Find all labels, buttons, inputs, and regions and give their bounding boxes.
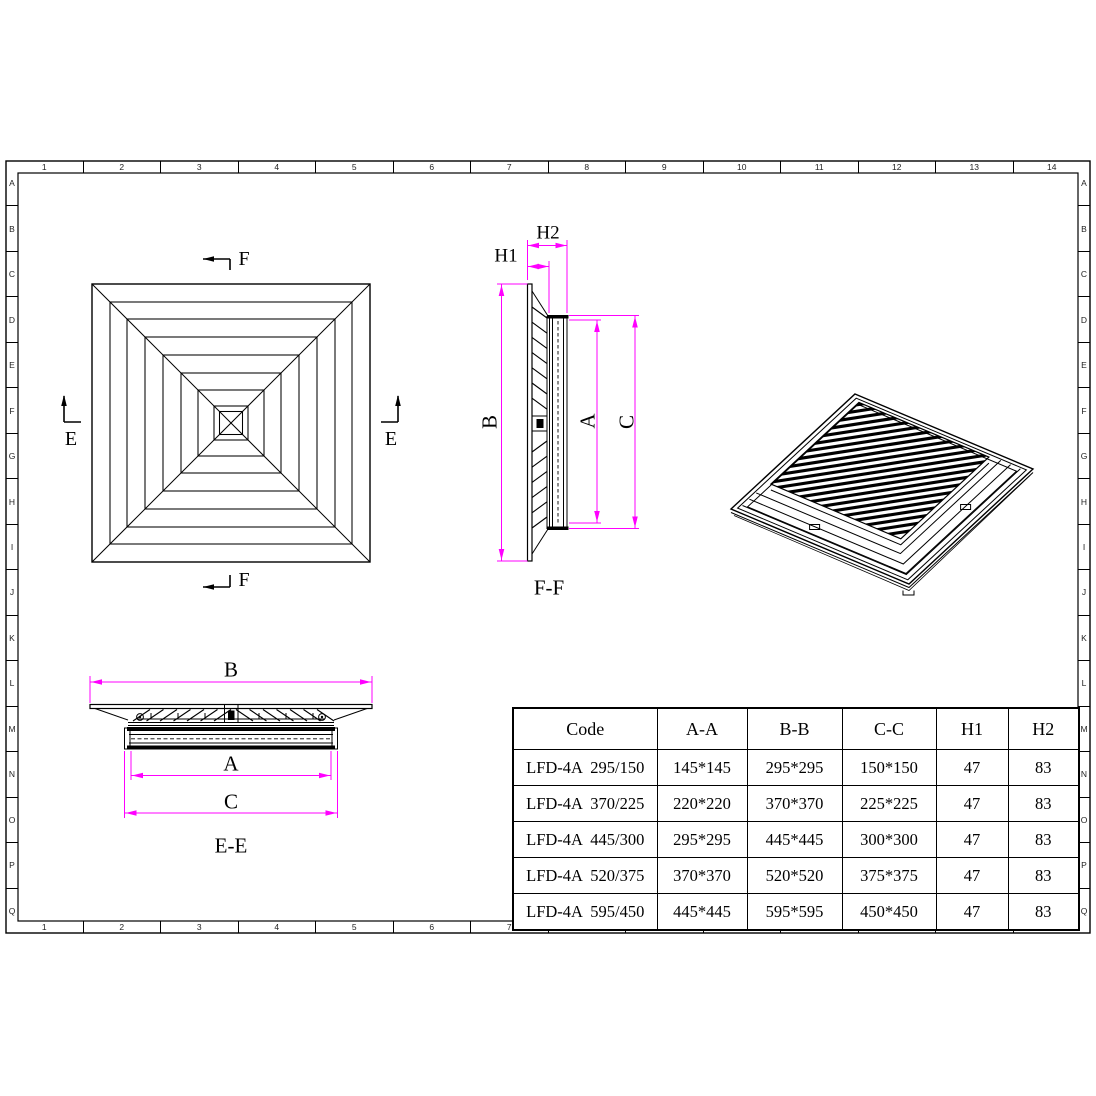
grid-ref-row-M: M: [6, 706, 18, 751]
dim-label-b-ff: B: [480, 415, 501, 429]
dim-label-h2: H2: [536, 224, 559, 243]
dim-label-b-ee: B: [224, 660, 238, 681]
spec-table-cell: 83: [1008, 894, 1079, 931]
spec-table-header: B-B: [747, 708, 842, 750]
grid-ref-row-Q: Q: [6, 888, 18, 933]
spec-table-cell: 83: [1008, 786, 1079, 822]
spec-table-cell: 47: [936, 894, 1008, 931]
grid-ref-col-4: 4: [238, 921, 316, 933]
section-title-ff: F-F: [534, 578, 564, 599]
grid-ref-row-D: D: [6, 296, 18, 341]
spec-table-cell: LFD-4A 295/150: [513, 750, 657, 786]
grid-ref-col-2: 2: [83, 161, 161, 173]
spec-table-cell: 145*145: [657, 750, 747, 786]
spec-table-cell: 47: [936, 822, 1008, 858]
table-row: LFD-4A 520/375370*370520*520375*3754783: [513, 858, 1079, 894]
grid-ref-row-A: A: [1078, 161, 1090, 205]
section-marker-label-e-left: E: [65, 429, 77, 449]
grid-ref-row-E: E: [1078, 342, 1090, 387]
grid-ref-row-N: N: [6, 751, 18, 796]
grid-ref-row-I: I: [1078, 524, 1090, 569]
spec-table-header: C-C: [842, 708, 936, 750]
grid-ref-row-J: J: [6, 569, 18, 614]
grid-ref-row-O: O: [6, 797, 18, 842]
spec-table-cell: 445*445: [657, 894, 747, 931]
grid-ref-col-3: 3: [160, 161, 238, 173]
dim-label-c-ee: C: [224, 792, 238, 813]
table-row: LFD-4A 370/225220*220370*370225*2254783: [513, 786, 1079, 822]
spec-table-cell: 445*445: [747, 822, 842, 858]
grid-ref-col-6: 6: [393, 161, 471, 173]
spec-table-cell: 300*300: [842, 822, 936, 858]
spec-table-header: Code: [513, 708, 657, 750]
section-marker-label-f-top: F: [238, 249, 249, 269]
spec-table-cell: 83: [1008, 858, 1079, 894]
spec-table-cell: LFD-4A 520/375: [513, 858, 657, 894]
spec-table-cell: 47: [936, 786, 1008, 822]
spec-table-cell: LFD-4A 445/300: [513, 822, 657, 858]
section-ee-view: [90, 705, 372, 750]
spec-table-header: H1: [936, 708, 1008, 750]
grid-ref-col-12: 12: [858, 161, 936, 173]
grid-ref-row-G: G: [1078, 433, 1090, 478]
grid-ref-row-H: H: [1078, 478, 1090, 523]
grid-ref-row-A: A: [6, 161, 18, 205]
spec-table-cell: 375*375: [842, 858, 936, 894]
spec-table-cell: 295*295: [747, 750, 842, 786]
grid-ref-col-4: 4: [238, 161, 316, 173]
grid-ref-row-I: I: [6, 524, 18, 569]
grid-ref-row-C: C: [6, 251, 18, 296]
spec-table-cell: 295*295: [657, 822, 747, 858]
grid-ref-col-13: 13: [935, 161, 1013, 173]
section-marker-label-e-right: E: [385, 429, 397, 449]
spec-table-cell: 150*150: [842, 750, 936, 786]
section-title-ee: E-E: [215, 836, 248, 857]
dim-label-h1: H1: [494, 247, 517, 266]
grid-ref-col-5: 5: [315, 921, 393, 933]
grid-ref-row-E: E: [6, 342, 18, 387]
grid-ref-row-L: L: [1078, 660, 1090, 705]
grid-ruler-top: 1234567891011121314: [6, 161, 1090, 173]
grid-ref-row-C: C: [1078, 251, 1090, 296]
spec-table-cell: 83: [1008, 822, 1079, 858]
spec-table-cell: 595*595: [747, 894, 842, 931]
grid-ref-row-G: G: [6, 433, 18, 478]
grid-ref-row-F: F: [1078, 387, 1090, 432]
spec-table-cell: 370*370: [747, 786, 842, 822]
grid-ref-row-H: H: [6, 478, 18, 523]
grid-ref-row-L: L: [6, 660, 18, 705]
grid-ref-col-6: 6: [393, 921, 471, 933]
grid-ruler-left: ABCDEFGHIJKLMNOPQ: [6, 161, 18, 933]
grid-ref-row-B: B: [6, 205, 18, 250]
grid-ref-row-K: K: [1078, 615, 1090, 660]
grid-ref-col-11: 11: [780, 161, 858, 173]
grid-ref-row-F: F: [6, 387, 18, 432]
plan-view-diagonals: [92, 284, 370, 562]
grid-ref-row-B: B: [1078, 205, 1090, 250]
drawing-sheet: 1234567891011121314 1234567891011121314 …: [0, 0, 1096, 1096]
spec-table-cell: 450*450: [842, 894, 936, 931]
grid-ref-col-5: 5: [315, 161, 393, 173]
grid-ref-col-7: 7: [470, 161, 548, 173]
spec-table: CodeA-AB-BC-CH1H2LFD-4A 295/150145*14529…: [512, 707, 1080, 931]
spec-table-cell: 47: [936, 858, 1008, 894]
spec-table-cell: LFD-4A 370/225: [513, 786, 657, 822]
grid-ref-col-8: 8: [548, 161, 626, 173]
section-ff-view: [528, 284, 569, 561]
spec-table-header: H2: [1008, 708, 1079, 750]
spec-table-header-row: CodeA-AB-BC-CH1H2: [513, 708, 1079, 750]
dim-label-a-ee: A: [223, 754, 238, 775]
spec-table-header: A-A: [657, 708, 747, 750]
spec-table-cell: 47: [936, 750, 1008, 786]
spec-table-cell: 520*520: [747, 858, 842, 894]
section-marker-label-f-bottom: F: [238, 570, 249, 590]
grid-ref-row-J: J: [1078, 569, 1090, 614]
spec-table-cell: LFD-4A 595/450: [513, 894, 657, 931]
grid-ref-row-K: K: [6, 615, 18, 660]
grid-ref-col-3: 3: [160, 921, 238, 933]
table-row: LFD-4A 595/450445*445595*595450*4504783: [513, 894, 1079, 931]
grid-ref-col-9: 9: [625, 161, 703, 173]
dim-label-c-ff: C: [617, 415, 638, 429]
grid-ref-row-P: P: [6, 842, 18, 887]
isometric-view: [731, 382, 1033, 595]
dim-label-a-ff: A: [578, 413, 599, 428]
spec-table-cell: 370*370: [657, 858, 747, 894]
spec-table-cell: 83: [1008, 750, 1079, 786]
grid-ref-row-D: D: [1078, 296, 1090, 341]
table-row: LFD-4A 295/150145*145295*295150*1504783: [513, 750, 1079, 786]
grid-ref-col-10: 10: [703, 161, 781, 173]
grid-ref-col-2: 2: [83, 921, 161, 933]
table-row: LFD-4A 445/300295*295445*445300*3004783: [513, 822, 1079, 858]
spec-table-cell: 225*225: [842, 786, 936, 822]
spec-table-cell: 220*220: [657, 786, 747, 822]
